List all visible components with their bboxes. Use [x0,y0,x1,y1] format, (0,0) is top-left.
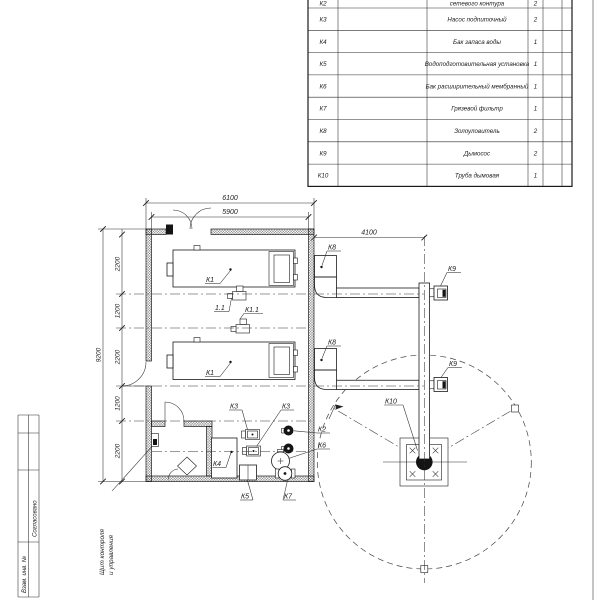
row-qty: 1 [534,61,537,68]
row-qty: 2 [533,150,538,157]
row-qty: 2 [533,1,538,8]
dim-seg3: 2200 [115,349,122,365]
dim-height: 9200 [96,347,103,362]
side-door-leaf [122,362,146,386]
row-name: Насос подпиточный [447,17,507,24]
row-pos: К8 [319,128,327,135]
ash-catcher-k8-2 [315,349,337,390]
boiler-1 [167,246,298,288]
boiler-pump-2 [231,319,250,333]
table-row: К2 сетевого контура 2 [319,1,537,8]
row-qty: 1 [534,106,537,113]
dim-seg5: 2200 [115,443,122,459]
dim-seg4: 1200 [115,396,122,411]
table-row: К3 Насос подпиточный 2 [319,17,537,24]
table-row: К6 Бак расширительный мембранный 1 [319,83,537,90]
guy-anchor-flag [329,405,344,420]
dim-seg1: 2200 [115,256,122,272]
table-row: К9 Дымосос 2 [319,150,537,157]
flue-duct-1 [337,288,420,298]
row-pos: К2 [319,1,327,8]
row-qty: 2 [533,17,538,24]
boiler-pump-1 [228,286,247,300]
doors [122,208,211,421]
top-door-leaf [190,208,211,229]
row-name: Золоуловитель [454,128,500,135]
table-row: К4 Бак запаса воды 1 [319,39,537,46]
dirt-filter-k7 [276,467,296,481]
label-k2: К2 [318,427,326,434]
row-qty: 2 [533,128,538,135]
label-k9-top: К9 [448,266,456,273]
label-k9-bottom: К9 [449,361,457,368]
equipment-table: К2 сетевого контура 2 К3 Насос подпиточн… [308,0,572,186]
row-qty: 1 [534,173,537,180]
water-tank-k4 [212,438,238,478]
row-pos: К6 [319,83,327,90]
label-k3-right: К3 [282,404,290,411]
titleblock-agreed: Согласовано [33,500,39,537]
dim-flue-run: 4100 [361,230,377,237]
boiler-plant-plan: 6100 5900 4100 2200 1200 2200 1200 2200 … [0,0,600,600]
row-pos: К5 [319,61,327,68]
label-k8-bottom: К8 [328,340,336,347]
row-pos: К3 [319,17,327,24]
row-name: сетевого контура [450,1,505,8]
dim-top-outer: 6100 [222,195,238,202]
row-pos: К7 [319,106,327,113]
table-row: К10 Труба дымовая 1 [318,173,537,180]
dim-seg2: 1200 [115,303,122,318]
door-jamb [166,225,173,235]
guy-anchor-right [512,405,519,412]
row-name: Труба дымовая [455,173,500,180]
smoke-exhauster-k9-1 [430,286,448,300]
table-row: К5 Водоподготовительная установка 1 [319,61,537,68]
label-pump-1-1: 1.1 [215,305,225,312]
row-qty: 1 [534,39,537,46]
row-pos: К10 [318,173,329,180]
label-pump-k1-1: К1.1 [245,307,259,314]
label-k6: К6 [318,443,326,450]
title-block-strip: Согласовано Взам. инв. № [18,415,39,597]
label-k5: К5 [241,494,249,501]
control-panel-note: Щит контроля и управления [99,447,152,576]
label-k4: К4 [213,461,221,468]
network-pump-k2-1 [282,426,294,436]
row-name: Бак запаса воды [453,39,501,46]
vestibule-door-leaf [165,402,184,421]
flue-duct-2 [337,380,420,389]
label-k3-left: К3 [230,404,238,411]
dim-top-inner: 5900 [222,209,238,216]
control-panel [152,434,159,447]
row-name: Дымосос [463,150,491,157]
boiler-2 [167,338,298,380]
row-pos: К9 [319,150,327,157]
partition-wall [152,421,166,427]
table-row: К8 Золоуловитель 2 [319,128,537,135]
label-k1-bottom: К1 [206,370,214,377]
smoke-exhauster-k9-2 [430,378,448,392]
water-treatment-k5 [240,465,257,480]
partition-wall [184,421,212,427]
note-line1: Щит контроля [99,529,106,575]
titleblock-inv: Взам. инв. № [21,555,28,593]
label-k10: К10 [385,399,397,406]
label-k7: К7 [284,494,293,501]
row-pos: К4 [319,39,327,46]
dimensions: 6100 5900 4100 2200 1200 2200 1200 2200 … [96,195,428,484]
row-name: Грязевой фильтр [451,106,503,113]
top-door-leaf [173,210,192,229]
drawing-sheet: 6100 5900 4100 2200 1200 2200 1200 2200 … [0,0,600,600]
note-line2: и управления [108,534,115,575]
makeup-pump-k3-2 [243,446,261,456]
row-name: Водоподготовительная установка [425,61,530,68]
label-k1-top: К1 [206,277,214,284]
row-name: Бак расширительный мембранный [426,83,529,90]
row-qty: 1 [534,83,537,90]
makeup-pump-k3-1 [242,430,260,440]
table-row: К7 Грязевой фильтр 1 [319,106,537,113]
label-k8-top: К8 [328,245,336,252]
ash-catcher-k8-1 [315,256,337,298]
